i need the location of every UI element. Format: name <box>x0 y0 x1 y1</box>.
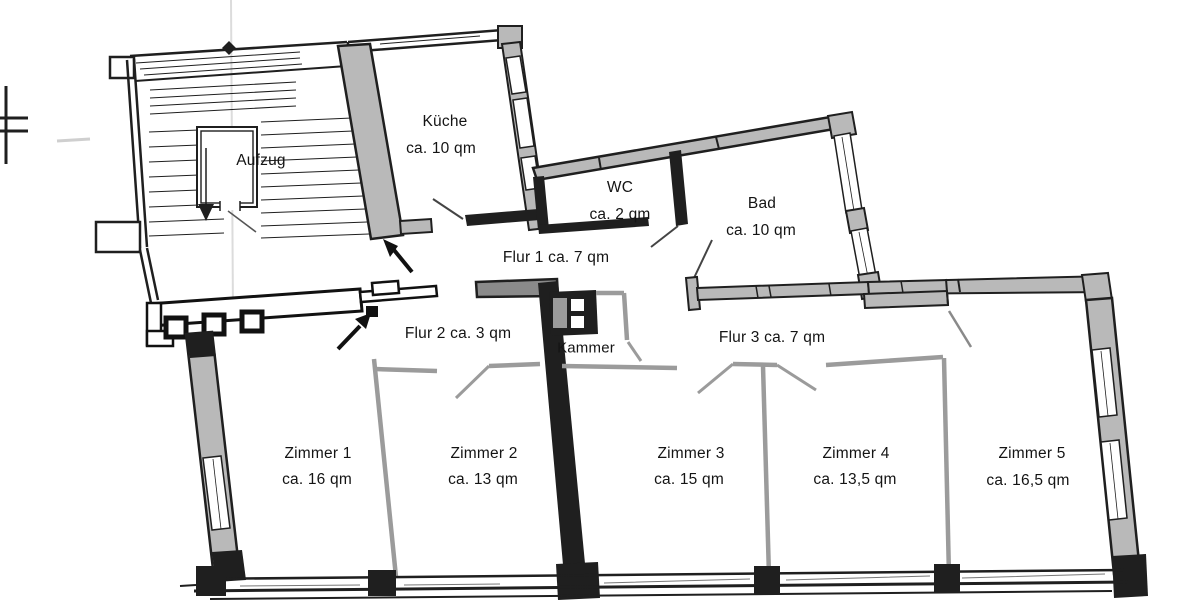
room-label-zimmer4: Zimmer 4 <box>822 445 889 463</box>
stairwell <box>0 41 369 303</box>
room-label-zimmer2: Zimmer 2 <box>450 445 517 463</box>
bad-bottom-wall <box>697 282 869 300</box>
wall-stub <box>180 585 196 586</box>
niche <box>242 312 262 331</box>
zimmer1-left-wall <box>186 332 240 578</box>
flur3-top-wall <box>868 276 1110 294</box>
wc-bad-walls <box>533 112 882 299</box>
elevator-door-gap <box>220 201 240 210</box>
smudge <box>57 139 90 141</box>
stairwell-top-wall <box>130 42 347 56</box>
wall-pillar <box>368 570 396 596</box>
entrance-arrow-stairwell-icon <box>383 239 412 272</box>
room-area-kueche: ca. 10 qm <box>406 140 476 158</box>
room-area-bad: ca. 10 qm <box>726 222 796 240</box>
partition <box>733 364 777 365</box>
zimmer3-zimmer4-partition <box>763 366 769 576</box>
zimmer2-door-swing <box>456 366 489 398</box>
floor-plan-drawing <box>0 0 1200 600</box>
flue-opening <box>571 299 584 311</box>
wall-pillar <box>754 566 780 594</box>
room-area-wc: ca. 2 qm <box>589 206 650 224</box>
wall-line <box>194 582 1128 591</box>
wall <box>140 248 158 303</box>
room-label-aufzug: Aufzug <box>236 152 285 170</box>
wall-block <box>556 562 600 600</box>
zimmer3-top-partition <box>562 366 677 368</box>
wall-stub <box>400 219 432 234</box>
kitchen-walls <box>338 26 547 239</box>
zimmer5-door-swing <box>949 311 971 347</box>
right-outer-wall <box>1082 273 1148 598</box>
wall-stub <box>96 222 140 252</box>
zimmer1-top-partition <box>375 369 437 371</box>
stair-direction-arrow-icon <box>198 204 214 221</box>
wc-bad-top-wall <box>533 116 840 180</box>
zimmer5-right-wall <box>1086 298 1140 574</box>
zimmer4-door-swing <box>777 365 816 390</box>
zimmer4-top-partition <box>826 357 943 365</box>
room-area-zimmer5: ca. 16,5 qm <box>986 472 1069 490</box>
room-label-zimmer5: Zimmer 5 <box>998 445 1065 463</box>
kammer-door-swing <box>628 342 641 361</box>
room-label-kammer: Kammer <box>557 340 615 357</box>
room-label-flur1: Flur 1 ca. 7 qm <box>503 249 609 267</box>
wall-pillar <box>934 564 960 592</box>
wall-corner-block <box>1112 554 1148 598</box>
wall-block <box>186 332 216 358</box>
floor-plan: Aufzug Küche ca. 10 qm WC ca. 2 qm Bad c… <box>0 0 1200 600</box>
room-label-zimmer3: Zimmer 3 <box>657 445 724 463</box>
room-label-wc: WC <box>607 179 633 197</box>
wall-pillar <box>196 566 226 596</box>
arrow-shaft <box>394 250 412 272</box>
wc-bad-divider-wall <box>669 150 688 226</box>
kitchen-top-wall <box>348 29 516 52</box>
left-outer-wall <box>186 332 246 582</box>
bottom-outer-wall <box>180 564 1128 599</box>
wall-fragment <box>0 86 28 164</box>
room-area-zimmer1: ca. 16 qm <box>282 471 352 489</box>
stairwell-left-wall <box>127 59 147 248</box>
room-label-flur2: Flur 2 ca. 3 qm <box>405 325 511 343</box>
room-label-zimmer1: Zimmer 1 <box>284 445 351 463</box>
kitchen-door-swing <box>433 199 463 219</box>
bad-door-swing <box>694 240 712 278</box>
wall-bump <box>864 291 948 308</box>
arrow-shaft <box>338 326 360 349</box>
wall-stub <box>110 57 134 78</box>
room-label-kueche: Küche <box>423 113 468 131</box>
wall-line <box>210 591 1112 599</box>
zimmer3-door-swing <box>698 364 733 393</box>
flue-opening <box>571 316 584 328</box>
wall-block <box>372 281 399 295</box>
zimmer1-zimmer2-partition <box>374 359 396 577</box>
room-area-zimmer4: ca. 13,5 qm <box>813 471 896 489</box>
zimmer4-zimmer5-partition <box>944 358 949 576</box>
niche <box>166 318 186 337</box>
wc-door-swing <box>651 226 678 247</box>
zimmer2-top-partition <box>489 364 540 366</box>
room-area-zimmer3: ca. 15 qm <box>654 471 724 489</box>
entrance-arrow-flur2-icon <box>338 313 371 349</box>
kammer-partition <box>596 293 627 340</box>
room-label-flur3: Flur 3 ca. 7 qm <box>719 329 825 347</box>
survey-diamond <box>222 41 236 55</box>
room-area-zimmer2: ca. 13 qm <box>448 471 518 489</box>
flue-block-light <box>553 298 567 328</box>
room-label-bad: Bad <box>748 195 776 213</box>
stair-treads-upper <box>150 82 296 114</box>
